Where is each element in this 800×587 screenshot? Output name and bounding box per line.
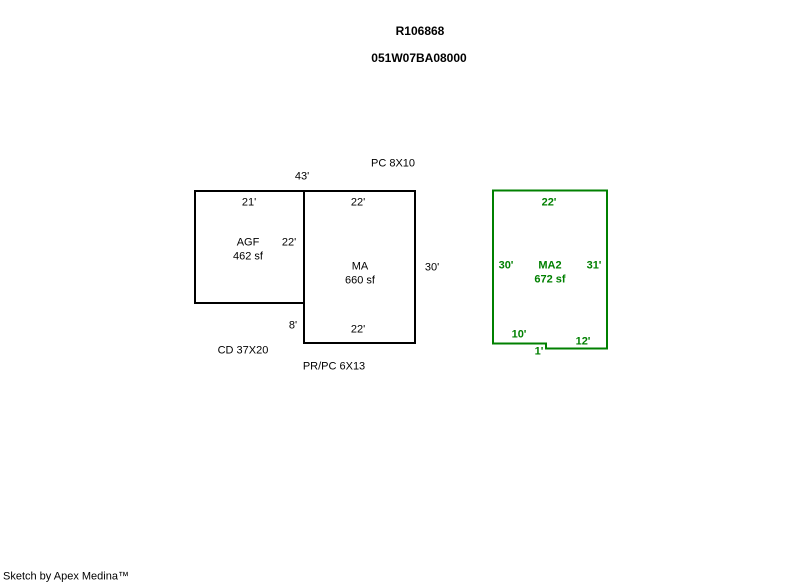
- sketch-outlines-svg: [0, 0, 800, 587]
- cd-annotation: CD 37X20: [218, 346, 269, 357]
- agf-area-label: 462 sf: [233, 252, 263, 263]
- ma2-bottom-left-dim: 10': [512, 330, 527, 341]
- pc-annotation: PC 8X10: [371, 159, 415, 170]
- ma-top-dim: 22': [351, 198, 365, 209]
- prpc-annotation: PR/PC 6X13: [303, 362, 365, 373]
- agf-top-dim: 21': [242, 198, 256, 209]
- sketch-credit: Sketch by Apex Medina™: [3, 572, 129, 583]
- ma2-step-dim: 1': [535, 347, 544, 358]
- ma-area-label: 660 sf: [345, 276, 375, 287]
- ma2-right-dim: 31': [587, 261, 602, 272]
- ma2-name-label: MA2: [538, 261, 561, 272]
- ma-right-dim: 30': [425, 263, 439, 274]
- agf-right-dim: 22': [282, 238, 296, 249]
- ma2-bottom-right-dim: 12': [576, 337, 591, 348]
- agf-name-label: AGF: [237, 238, 260, 249]
- ma-bottom-dim: 22': [351, 325, 365, 336]
- sketch-page: R106868 051W07BA08000 PC 8X10 43' 21' 22…: [0, 0, 800, 587]
- ma-name-label: MA: [352, 262, 369, 273]
- ma2-area-label: 672 sf: [534, 275, 565, 286]
- ma2-top-dim: 22': [542, 198, 557, 209]
- overall-width-dim: 43': [295, 172, 309, 183]
- ma-offset-dim: 8': [289, 321, 297, 332]
- ma2-left-dim: 30': [499, 261, 514, 272]
